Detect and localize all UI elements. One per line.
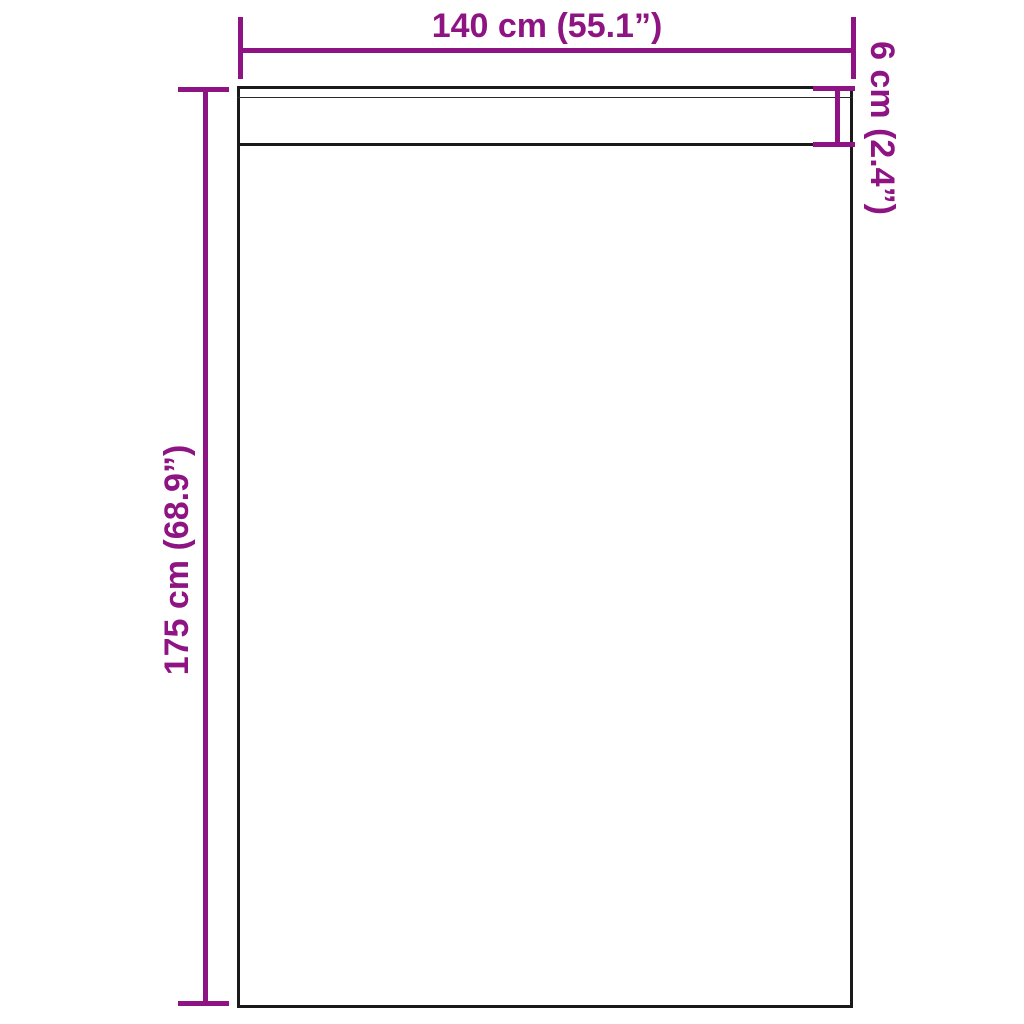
height-dimension-tick-top — [178, 87, 229, 92]
dimension-diagram-canvas: 140 cm (55.1”) 175 cm (68.9”) 6 cm (2.4”… — [0, 0, 1024, 1024]
width-dimension-line — [238, 48, 856, 53]
header-seam-line — [237, 143, 853, 146]
height-dimension-line — [203, 89, 208, 1003]
height-dimension-tick-bottom — [178, 1001, 229, 1006]
width-dimension-tick-left — [238, 17, 243, 79]
width-dimension-tick-right — [851, 17, 856, 79]
header-dimension-line — [835, 88, 840, 146]
curtain-panel-rectangle — [237, 86, 853, 1008]
header-dimension-tick-top — [813, 86, 855, 91]
header-dimension-tick-bottom — [813, 142, 855, 147]
width-dimension-label: 140 cm (55.1”) — [347, 6, 747, 46]
rod-pocket-stitch-line — [237, 97, 853, 98]
header-dimension-label: 6 cm (2.4”) — [862, 0, 902, 278]
height-dimension-label: 175 cm (68.9”) — [157, 410, 197, 710]
